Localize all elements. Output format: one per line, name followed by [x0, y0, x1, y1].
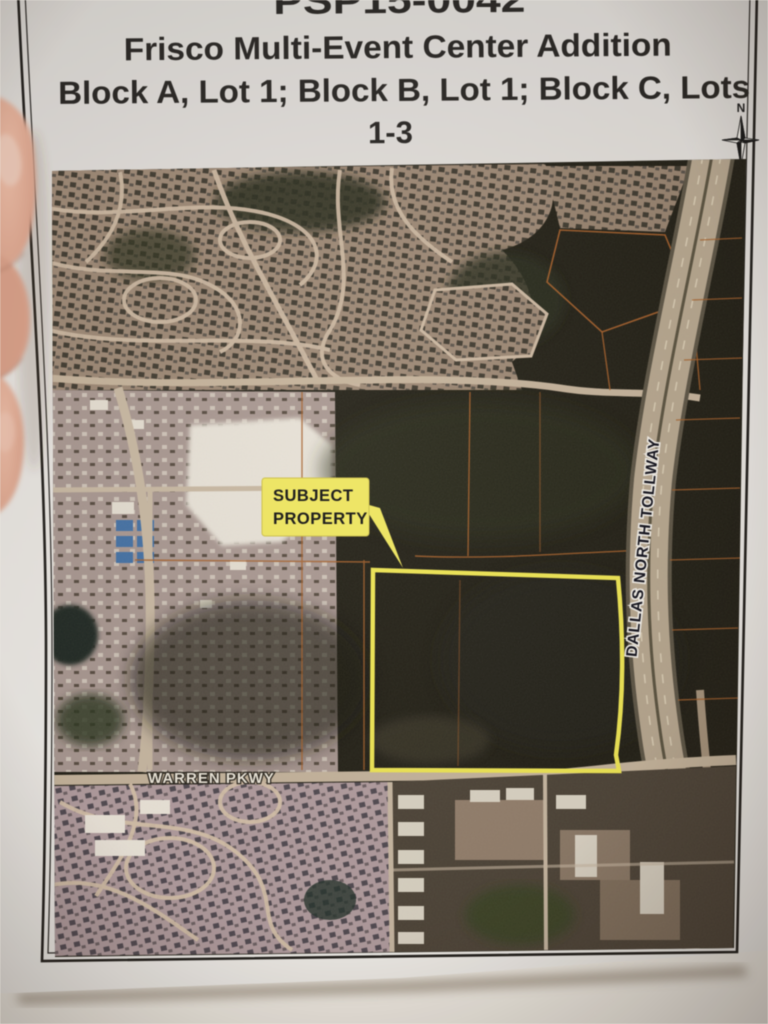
photo-of-planning-document: PSP15-0042 Frisco Multi-Event Center Add…: [0, 0, 768, 1024]
photo-vignette: [0, 0, 768, 1024]
